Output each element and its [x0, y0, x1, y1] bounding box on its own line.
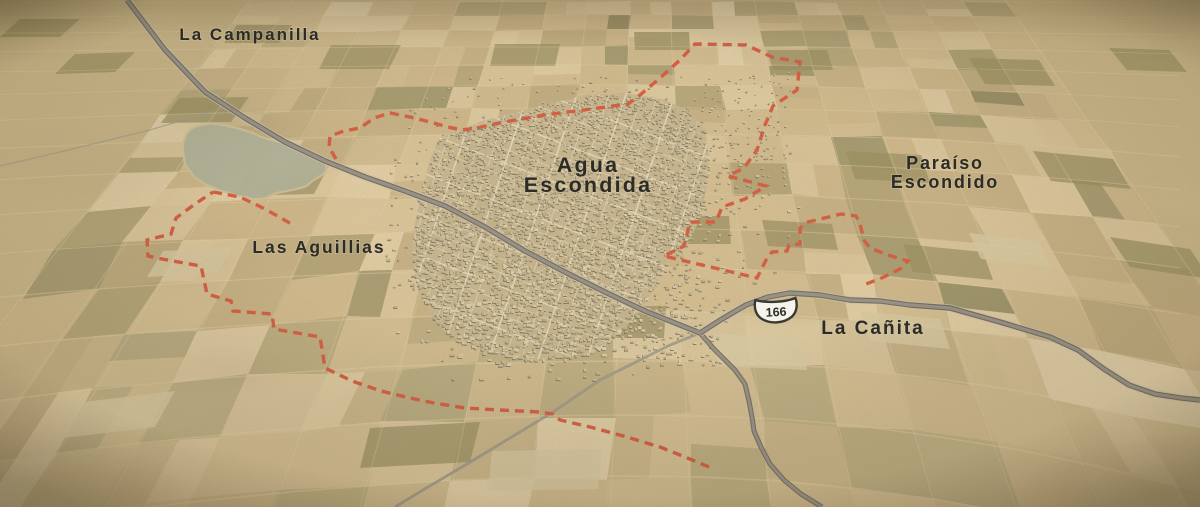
svg-text:La Cañita: La Cañita [821, 318, 925, 339]
svg-text:166: 166 [765, 305, 787, 320]
svg-text:La Campanilla: La Campanilla [179, 25, 320, 44]
svg-text:ParaísoEscondido: ParaísoEscondido [891, 153, 999, 192]
svg-text:Las Aguillias: Las Aguillias [252, 237, 385, 257]
